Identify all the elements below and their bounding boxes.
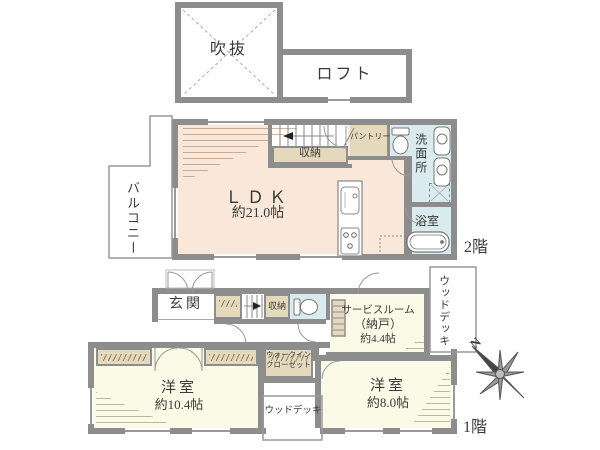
wood-deck-bottom-label: ウッドデッキ — [264, 406, 322, 417]
entrance-porch — [166, 270, 214, 288]
bedroom-b-label: 洋室 — [338, 378, 438, 395]
pantry-label: パントリー — [350, 132, 387, 141]
bedroom-b-window-side — [451, 385, 457, 419]
storage-1f-label: 収納 — [264, 301, 290, 311]
washer-space — [429, 183, 450, 203]
bedroom-b-window-2 — [400, 428, 432, 434]
balcony-outline — [109, 116, 172, 258]
bedroom-a-window-2 — [192, 428, 230, 434]
bedroom-a-closet-right — [204, 348, 258, 366]
wic-label-2: クローゼット — [264, 361, 313, 370]
wood-deck-side-label: ウッドデッキ — [437, 272, 450, 350]
ldk-size-label: 約21.0帖 — [206, 206, 310, 222]
compass-icon — [472, 346, 524, 400]
bedroom-a-size-label: 約10.4帖 — [129, 398, 229, 413]
ldk-window-2 — [300, 254, 342, 260]
void-label: 吹抜 — [199, 41, 259, 59]
service-room-label: サービスルーム — [336, 305, 420, 317]
loft-window — [328, 97, 350, 103]
bedroom-a-window-1 — [125, 428, 170, 434]
washroom-label: 洗面所 — [413, 128, 427, 180]
storage-2f-label: 収納 — [284, 147, 336, 160]
bedroom-b-size-label: 約8.0帖 — [338, 396, 438, 411]
wic-label-1: ウォークイン — [264, 351, 313, 360]
floor1-label: 1階 — [455, 419, 495, 437]
shoe-closet — [214, 294, 242, 319]
floor-plan: 吹抜 ロフト バルコニー ＬＤＫ 約21.0帖 収納 パントリー 洗面所 浴室 … — [0, 0, 600, 450]
toilet-room-2f — [390, 125, 412, 158]
stairs-area-1f — [242, 294, 264, 320]
toilet-room-1f — [290, 294, 326, 320]
service-room-alt-label: （納戸） — [336, 318, 420, 332]
service-room-size-label: 約4.4帖 — [336, 333, 420, 346]
compass-north-label: N — [465, 333, 487, 355]
bedroom-a-closet-left — [96, 348, 152, 366]
ldk-window-1 — [214, 254, 256, 260]
bedroom-a-label: 洋室 — [129, 380, 229, 397]
balcony-label: バルコニー — [124, 178, 139, 258]
balcony-window — [172, 188, 178, 238]
ldk-window-top — [208, 119, 264, 125]
floor2-label: 2階 — [456, 239, 496, 257]
bathroom-label: 浴室 — [408, 215, 446, 229]
ldk-label: ＬＤＫ — [206, 188, 310, 208]
bedroom-a-window-side — [88, 388, 94, 424]
wood-deck-bottom-outline — [263, 396, 322, 440]
entrance-label: 玄関 — [160, 297, 212, 313]
bedroom-b-window-1 — [345, 428, 383, 434]
loft-label: ロフト — [312, 66, 378, 84]
